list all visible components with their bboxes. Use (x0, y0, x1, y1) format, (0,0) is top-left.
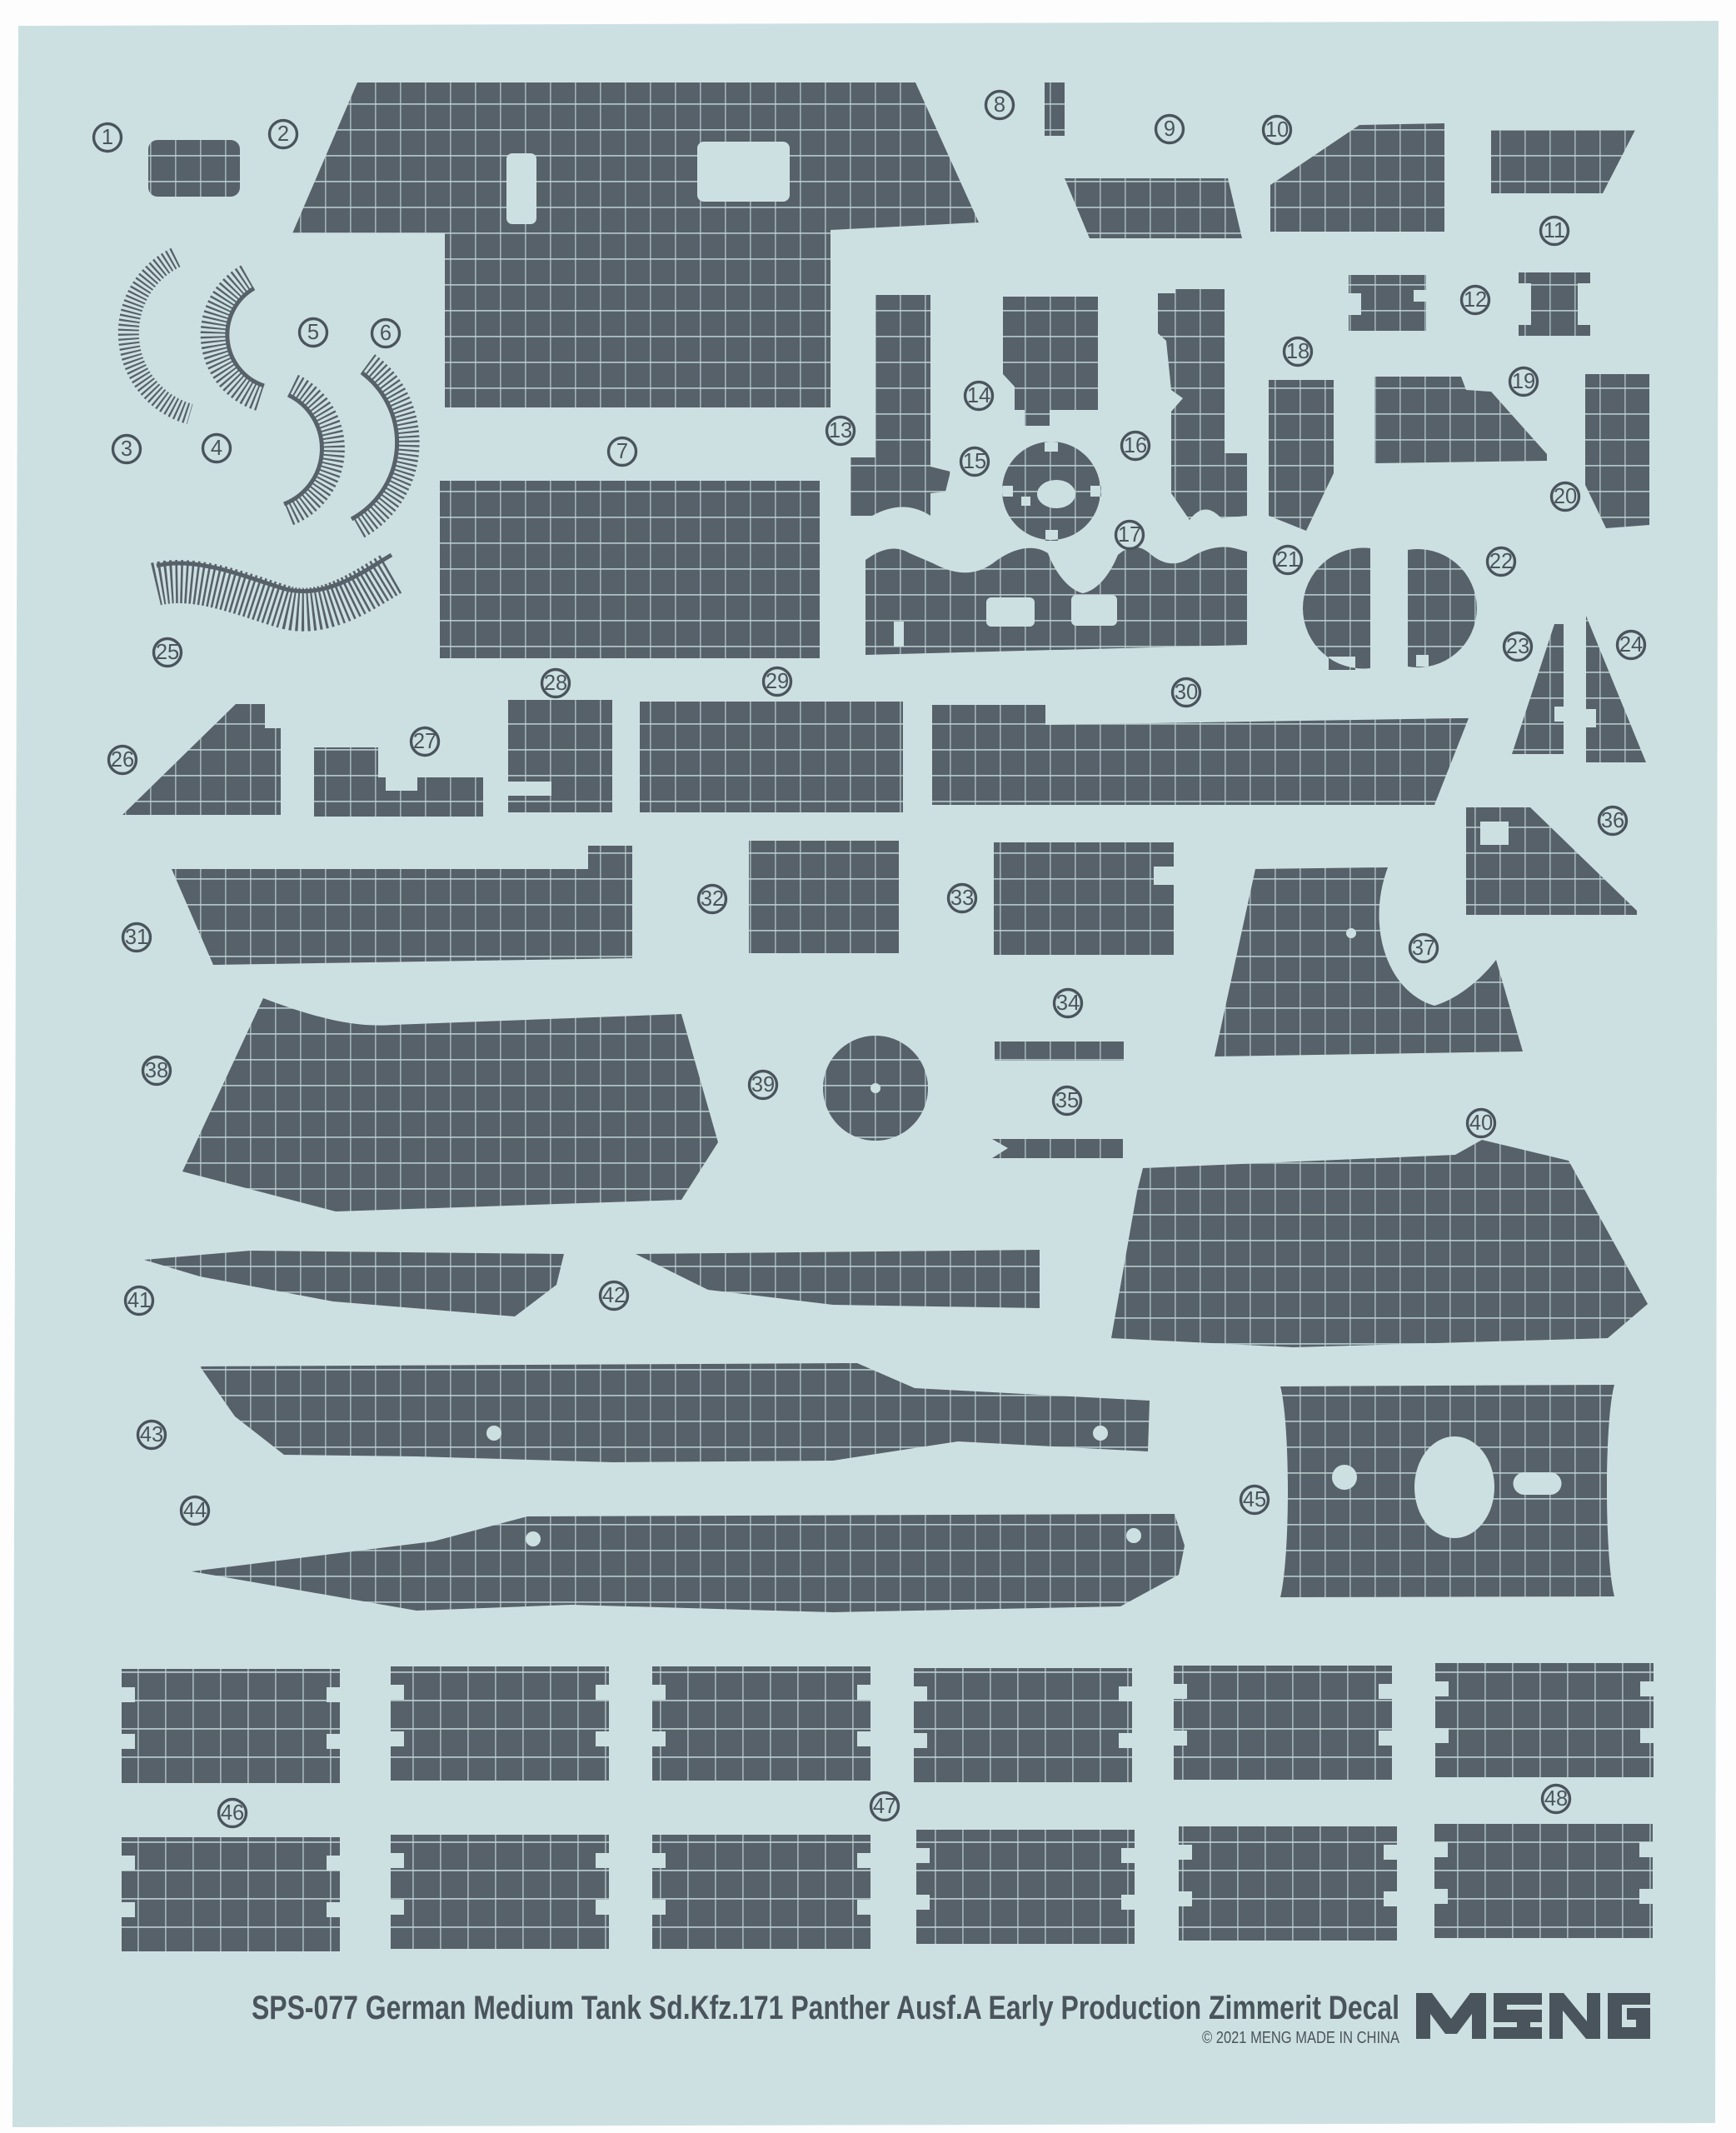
svg-text:23: 23 (1506, 635, 1529, 658)
svg-text:28: 28 (544, 672, 567, 695)
svg-text:16: 16 (1124, 434, 1147, 457)
svg-text:32: 32 (701, 887, 724, 911)
svg-text:45: 45 (1243, 1488, 1266, 1511)
svg-text:42: 42 (602, 1284, 626, 1307)
svg-text:SPS-077 German Medium Tank Sd.: SPS-077 German Medium Tank Sd.Kfz.171 Pa… (252, 1990, 1399, 2026)
svg-text:10: 10 (1265, 118, 1289, 142)
svg-text:6: 6 (380, 322, 392, 345)
svg-text:43: 43 (140, 1423, 163, 1446)
svg-text:19: 19 (1512, 370, 1535, 393)
svg-text:36: 36 (1601, 809, 1624, 832)
svg-text:2: 2 (277, 122, 289, 146)
svg-text:24: 24 (1619, 633, 1643, 657)
svg-text:34: 34 (1056, 992, 1080, 1015)
svg-text:20: 20 (1554, 485, 1577, 508)
svg-text:39: 39 (751, 1073, 775, 1096)
svg-text:13: 13 (829, 419, 852, 442)
svg-text:40: 40 (1469, 1111, 1493, 1135)
svg-text:18: 18 (1286, 340, 1309, 363)
svg-text:11: 11 (1544, 219, 1565, 242)
svg-text:37: 37 (1412, 937, 1435, 960)
svg-text:30: 30 (1175, 681, 1198, 704)
svg-text:38: 38 (145, 1059, 168, 1082)
svg-text:47: 47 (873, 1795, 896, 1818)
svg-text:17: 17 (1118, 523, 1141, 547)
svg-text:41: 41 (127, 1289, 151, 1312)
svg-text:25: 25 (156, 641, 179, 664)
svg-text:15: 15 (963, 450, 986, 473)
svg-text:44: 44 (183, 1499, 207, 1522)
svg-text:48: 48 (1544, 1787, 1568, 1811)
svg-text:35: 35 (1055, 1089, 1079, 1112)
svg-text:26: 26 (111, 748, 134, 772)
svg-text:22: 22 (1489, 550, 1513, 573)
svg-text:9: 9 (1164, 117, 1175, 141)
svg-text:1: 1 (102, 126, 113, 149)
svg-text:3: 3 (121, 437, 132, 461)
svg-text:4: 4 (211, 437, 222, 460)
svg-text:12: 12 (1464, 288, 1487, 312)
svg-text:27: 27 (413, 730, 436, 753)
svg-text:© 2021 MENG MADE IN CHINA: © 2021 MENG MADE IN CHINA (1202, 2029, 1400, 2047)
svg-text:14: 14 (967, 384, 990, 407)
svg-text:8: 8 (994, 93, 1005, 117)
svg-text:21: 21 (1276, 548, 1300, 572)
svg-text:5: 5 (307, 321, 319, 344)
svg-text:29: 29 (766, 670, 789, 693)
svg-text:46: 46 (221, 1801, 244, 1825)
svg-text:31: 31 (125, 926, 148, 949)
svg-text:33: 33 (950, 887, 974, 910)
svg-text:7: 7 (616, 440, 628, 463)
